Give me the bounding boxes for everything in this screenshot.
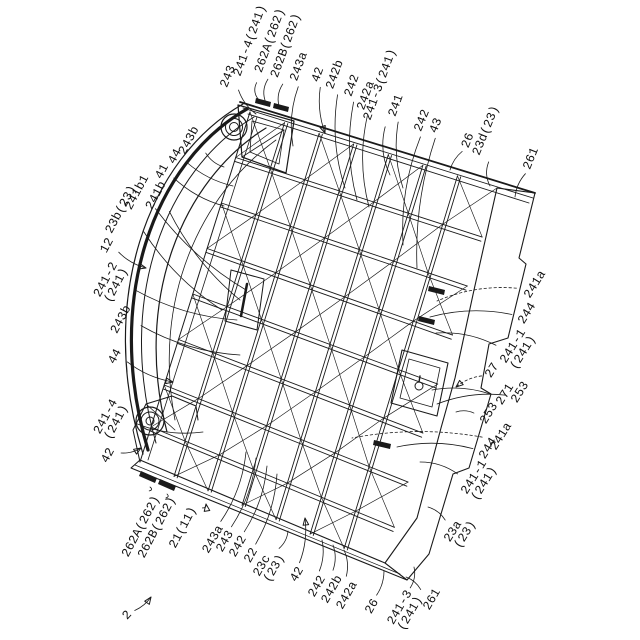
leader-40 (377, 571, 384, 595)
cross-braces (151, 112, 497, 549)
leader-10 (396, 122, 403, 188)
cross-braces-stroke (345, 261, 394, 297)
cross-braces-stroke (325, 202, 374, 238)
rib-grid-stroke (177, 343, 421, 437)
leader-7 (349, 102, 357, 200)
clip-housing-stroke (391, 350, 448, 416)
rib-grid-stroke (245, 145, 357, 507)
cross-braces-stroke (256, 180, 305, 215)
mount-rail-marks-stroke (255, 98, 271, 107)
rib-grid-stroke (234, 161, 480, 241)
rib-grid-stroke (207, 249, 452, 336)
right-wall-stroke (385, 188, 535, 580)
leader-48 (432, 388, 490, 394)
leader-31 (221, 452, 246, 521)
rib-grid-stroke (344, 176, 457, 549)
rib-grid-stroke (192, 298, 437, 388)
leader-19 (155, 209, 246, 290)
cross-braces-stroke (296, 297, 345, 332)
top-rail-stroke (248, 114, 529, 203)
leader-53 (437, 288, 516, 301)
cross-braces-stroke (335, 418, 384, 453)
cross-braces-stroke (305, 144, 354, 180)
leader-50 (437, 394, 505, 404)
leader-lines (119, 79, 526, 610)
leader-35 (279, 531, 288, 548)
leader-15 (515, 174, 525, 197)
leader-52 (430, 311, 512, 317)
leader-6 (335, 95, 345, 188)
leader-51 (436, 333, 496, 346)
leader-34 (256, 474, 277, 544)
leader-8 (363, 116, 369, 207)
rib-grid-stroke (179, 340, 423, 434)
rib-grid-stroke (221, 203, 467, 286)
arc-frame-stroke (141, 117, 254, 443)
top-rail (240, 102, 535, 203)
clip-housing-stroke (415, 382, 423, 390)
left-edge-stroke (148, 117, 257, 460)
leader-14 (487, 162, 490, 186)
bracket-241-2 (225, 270, 264, 330)
cross-braces-stroke (247, 332, 296, 366)
leader-29 (166, 494, 168, 498)
rib-grid-stroke (163, 389, 407, 486)
cross-braces-stroke (276, 238, 325, 273)
top-rail-stroke (240, 102, 535, 193)
leader-39 (344, 550, 348, 576)
rib-grid (150, 123, 482, 550)
leader-38 (333, 545, 335, 570)
leader-45 (397, 443, 473, 448)
right-wall (385, 188, 535, 580)
hook-marks-stroke (373, 440, 391, 449)
rib-grid-stroke (208, 133, 319, 491)
cross-braces-stroke (207, 215, 256, 249)
cross-braces-stroke (443, 188, 497, 224)
cross-braces-stroke (267, 392, 316, 426)
rib-grid-stroke (164, 385, 408, 482)
mount-rail-marks-stroke (273, 103, 289, 112)
cross-braces-stroke (287, 453, 335, 483)
mount-rail-marks (139, 98, 289, 491)
cross-braces-stroke (227, 273, 276, 307)
leader-46 (352, 432, 482, 438)
figure-canvas: 243241-4(241)262A(262)262B(262)243a42242… (0, 0, 640, 640)
cross-braces-stroke (179, 307, 228, 340)
leader-28 (149, 487, 151, 491)
clip-housing-stroke (419, 376, 420, 382)
leader-44 (420, 462, 458, 474)
patent-drawing (0, 0, 640, 640)
cross-braces-stroke (219, 426, 266, 455)
rib-grid-stroke (279, 156, 391, 521)
leader-4 (291, 87, 298, 146)
leader-arrow-30 (204, 504, 210, 511)
arc-frame-stroke (169, 140, 276, 420)
leader-47 (456, 411, 474, 413)
leader-arrow-49 (456, 380, 463, 387)
leader-2 (264, 79, 268, 103)
rib-grid-stroke (310, 165, 423, 534)
leader-41 (410, 567, 415, 588)
arc-frame-stroke (156, 128, 266, 432)
cross-braces-stroke (315, 357, 364, 392)
rib-grid-stroke (242, 144, 354, 505)
rib-grid-stroke (150, 431, 393, 532)
rib-grid-stroke (211, 134, 322, 492)
leader-1 (255, 83, 259, 100)
cross-braces-stroke (198, 366, 247, 399)
clip-housing (391, 350, 448, 416)
rib-grid-stroke (193, 294, 438, 384)
cross-braces-stroke (394, 224, 443, 261)
leader-17 (187, 163, 233, 186)
rib-grid-stroke (276, 155, 388, 520)
rib-grid-stroke (220, 207, 466, 290)
